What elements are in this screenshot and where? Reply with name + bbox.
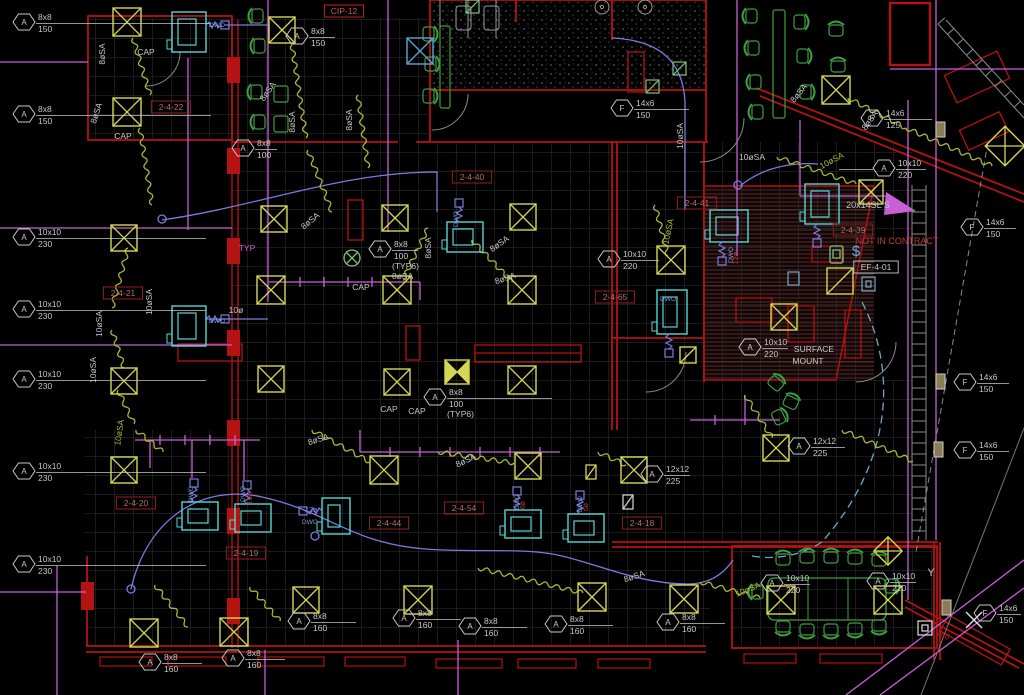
duct-flow: 230 xyxy=(38,566,52,576)
duct-flow: 220 xyxy=(898,170,912,180)
supply-diffuser[interactable] xyxy=(985,126,1024,166)
chair xyxy=(747,74,762,90)
annotation-label[interactable]: 10øSA xyxy=(675,123,685,149)
chair xyxy=(794,14,809,30)
annotation-label[interactable]: DWO xyxy=(577,496,584,512)
duct-size: 10x10 xyxy=(764,337,787,347)
annotation-label[interactable]: 6ø xyxy=(583,502,590,511)
tag-letter: A xyxy=(796,442,802,451)
duct-size: 14x6 xyxy=(636,98,655,108)
duct-flow: 125 xyxy=(886,120,900,130)
annotation-label[interactable]: 10øSA xyxy=(739,152,765,162)
annotation-label[interactable]: MOUNT xyxy=(792,356,823,366)
tag-text: 2-4-18 xyxy=(630,518,655,528)
tag-text: 2-4-19 xyxy=(234,548,259,558)
duct-size: 10x10 xyxy=(38,369,61,379)
tag-text: 2-4-22 xyxy=(159,102,184,112)
duct-flow: 230 xyxy=(38,381,52,391)
tag-text: 2-4-54 xyxy=(452,503,477,513)
duct-size: 10x10 xyxy=(38,461,61,471)
cad-drawing-canvas[interactable]: A8x8150A8x8150A8x8150A8x8100A8x8100(TYP6… xyxy=(0,0,1024,695)
duct-flow: 160 xyxy=(570,626,584,636)
annotation-label[interactable]: DWO xyxy=(188,486,195,502)
tag-letter: A xyxy=(296,617,302,626)
annotation-label[interactable]: DWO xyxy=(209,22,225,29)
duct-size: 8x8 xyxy=(484,616,498,626)
duct-size: 12x12 xyxy=(666,464,689,474)
duct-size-tag[interactable]: A8x8160 xyxy=(139,652,202,674)
annotation-label[interactable]: TYP xyxy=(239,243,256,253)
duct-size: 8x8 xyxy=(570,614,584,624)
duct-flow: 100 xyxy=(449,399,463,409)
chair xyxy=(797,48,812,64)
tag-text: EF-4-01 xyxy=(861,262,892,272)
supply-diffuser[interactable] xyxy=(111,225,137,251)
tag-letter: A xyxy=(230,654,236,663)
tag-letter: A xyxy=(467,622,473,631)
fan-coil-unit[interactable] xyxy=(167,306,229,346)
chair xyxy=(830,58,846,73)
tag-text: 2-4-41 xyxy=(685,198,710,208)
duct-flow: 160 xyxy=(484,628,498,638)
tag-letter: A xyxy=(432,393,438,402)
duct-size: 8x8 xyxy=(311,26,325,36)
duct-flow: 150 xyxy=(979,452,993,462)
annotation-label[interactable]: NOT IN CONTRACT xyxy=(856,236,939,246)
detail-reference-tag[interactable]: 2-4-21 xyxy=(103,287,142,299)
duct-size: 8x8 xyxy=(38,104,52,114)
flex-duct[interactable] xyxy=(111,330,124,368)
annotation-label[interactable]: SURFACE xyxy=(794,344,834,354)
duct-flow: 225 xyxy=(666,476,680,486)
duct-size: 10x10 xyxy=(38,554,61,564)
tag-extra: (TYP6) xyxy=(392,261,419,271)
tag-letter: A xyxy=(21,375,27,384)
tag-letter: F xyxy=(963,378,968,387)
annotation-label[interactable]: DWO xyxy=(514,494,521,510)
duct-size: 10x10 xyxy=(623,249,646,259)
duct-size: 14x6 xyxy=(979,372,998,382)
tag-letter: A xyxy=(769,579,775,588)
duct-flow: 230 xyxy=(38,473,52,483)
annotation-label[interactable]: 10øSA xyxy=(94,311,104,337)
duct-size: 8x8 xyxy=(394,239,408,249)
duct-flow: 160 xyxy=(247,660,261,670)
duct-flow: 160 xyxy=(418,620,432,630)
tag-letter: A xyxy=(553,620,559,629)
duct-size-tag[interactable]: A10x10230 xyxy=(13,227,206,249)
tag-letter: A xyxy=(21,18,27,27)
annotation-label[interactable]: CAP xyxy=(408,406,426,416)
parapet-segments xyxy=(100,654,882,668)
duct-size: 14x6 xyxy=(979,440,998,450)
duct-flow: 225 xyxy=(813,448,827,458)
tag-letter: A xyxy=(606,255,612,264)
tag-letter: A xyxy=(294,32,300,41)
tag-letter: A xyxy=(401,614,407,623)
annotation-label[interactable]: 10ø xyxy=(229,305,244,315)
tag-text: 2-4-65 xyxy=(603,292,628,302)
annotation-label[interactable]: DWO xyxy=(302,519,318,526)
duct-size: 8x8 xyxy=(164,652,178,662)
annotation-label[interactable]: CAP xyxy=(114,131,132,141)
annotation-label[interactable]: 10øSA xyxy=(144,289,154,315)
annotation-label[interactable]: DWO xyxy=(728,247,735,263)
duct-size: 14x6 xyxy=(986,217,1005,227)
tag-letter: A xyxy=(881,164,887,173)
duct-flow: 160 xyxy=(682,624,696,634)
duct-flow: 150 xyxy=(986,229,1000,239)
duct-size-tag[interactable]: F14x6150 xyxy=(611,98,689,120)
duct-size: 8x8 xyxy=(313,611,327,621)
duct-size-tag[interactable]: A10x10230 xyxy=(13,369,206,391)
duct-size: 10x10 xyxy=(898,158,921,168)
duct-size: 8x8 xyxy=(418,608,432,618)
chair xyxy=(828,22,844,37)
chair xyxy=(749,104,764,120)
tag-text: 2-4-40 xyxy=(460,172,485,182)
duct-flow: 150 xyxy=(999,615,1013,625)
tag-letter: F xyxy=(963,446,968,455)
tag-letter: A xyxy=(377,245,383,254)
duct-size: 14x6 xyxy=(999,603,1018,613)
chair xyxy=(743,8,758,24)
tag-letter: A xyxy=(649,470,655,479)
duct-flow: 150 xyxy=(311,38,325,48)
duct-size-tag[interactable]: F14x6150 xyxy=(961,217,1016,239)
tag-letter: A xyxy=(21,233,27,242)
duct-size: 8x8 xyxy=(38,12,52,22)
duct-flow: 230 xyxy=(38,311,52,321)
duct-size: 8x8 xyxy=(257,138,271,148)
tag-text: 2-4-20 xyxy=(124,498,149,508)
annotation-label[interactable]: CAP xyxy=(352,282,370,292)
duct-size: 8x8 xyxy=(449,387,463,397)
tag-letter: A xyxy=(21,305,27,314)
flex-duct[interactable] xyxy=(117,390,135,424)
duct-flow: 100 xyxy=(394,251,408,261)
duct-flow: 220 xyxy=(623,261,637,271)
duct-size: 10x10 xyxy=(38,299,61,309)
tag-letter: A xyxy=(21,560,27,569)
annotation-label[interactable]: 20x14SL S xyxy=(846,200,890,210)
duct-flow: 150 xyxy=(38,24,52,34)
tag-letter: A xyxy=(147,658,153,667)
annotation-label[interactable]: 6ø xyxy=(520,500,527,509)
supply-diffuser[interactable] xyxy=(111,368,137,394)
duct-size: 10x10 xyxy=(892,571,915,581)
annotation-label[interactable]: 8øSA xyxy=(859,108,880,131)
tag-letter: A xyxy=(875,577,881,586)
tag-extra: 8øSA xyxy=(392,271,414,281)
duct-flow: 230 xyxy=(38,239,52,249)
annotation-label[interactable]: DWO xyxy=(660,296,676,303)
duct-flow: 160 xyxy=(164,664,178,674)
duct-flow: 220 xyxy=(892,583,906,593)
tag-letter: A xyxy=(21,110,27,119)
chair xyxy=(745,40,760,56)
duct-size-tag[interactable]: F14x6150 xyxy=(954,440,1009,462)
supply-diffuser[interactable] xyxy=(822,76,850,104)
annotation-label[interactable]: 10øSA xyxy=(88,357,98,383)
tag-text: 2-4-21 xyxy=(111,288,136,298)
equipment-tag[interactable]: EF-4-01 xyxy=(854,261,898,273)
tag-text: CIP-12 xyxy=(331,6,358,16)
annotation-label[interactable]: 8øSA xyxy=(423,237,433,259)
annotation-label[interactable]: Y xyxy=(927,567,935,579)
duct-flow: 150 xyxy=(38,116,52,126)
annotation-label[interactable]: 8øSA xyxy=(344,109,354,131)
duct-flow: 220 xyxy=(764,349,778,359)
tag-extra: (TYP6) xyxy=(447,409,474,419)
duct-size-tag[interactable]: A10x10230 xyxy=(13,299,206,321)
duct-size: 14x6 xyxy=(886,108,905,118)
duct-flow: 150 xyxy=(979,384,993,394)
annotation-label[interactable]: CAP xyxy=(380,404,398,414)
tag-letter: F xyxy=(983,609,988,618)
duct-flow: 160 xyxy=(313,623,327,633)
duct-size: 10x10 xyxy=(38,227,61,237)
duct-size: 8x8 xyxy=(247,648,261,658)
annotation-label[interactable]: 12ø xyxy=(305,505,318,514)
tag-text: 2-4-44 xyxy=(377,518,402,528)
annotation-label[interactable]: 8øSA xyxy=(287,111,297,133)
annotation-label[interactable]: CAP xyxy=(137,47,155,57)
annotation-label[interactable]: $ xyxy=(852,243,861,260)
tag-letter: F xyxy=(620,104,625,113)
tag-letter: A xyxy=(21,467,27,476)
duct-flow: 100 xyxy=(257,150,271,160)
duct-size: 10x10 xyxy=(786,573,809,583)
duct-flow: 220 xyxy=(786,585,800,595)
annotation-label[interactable]: DWO xyxy=(240,486,247,502)
annotation-label[interactable]: DWO xyxy=(209,318,225,325)
tag-text: 2-4-39 xyxy=(841,225,866,235)
duct-size-tag[interactable]: F14x6150 xyxy=(954,372,1009,394)
tag-letter: A xyxy=(240,144,246,153)
annotation-label[interactable]: 8øSA xyxy=(97,43,107,65)
not-in-contract-hatch-zone xyxy=(704,186,874,380)
tag-letter: A xyxy=(747,343,753,352)
detail-reference-tag[interactable]: CIP-12 xyxy=(324,5,363,17)
duct-flow: 150 xyxy=(636,110,650,120)
annotation-label[interactable]: DWO xyxy=(453,211,460,227)
duct-size: 8x8 xyxy=(682,612,696,622)
tag-letter: A xyxy=(665,618,671,627)
duct-size: 12x12 xyxy=(813,436,836,446)
tag-letter: F xyxy=(970,223,975,232)
